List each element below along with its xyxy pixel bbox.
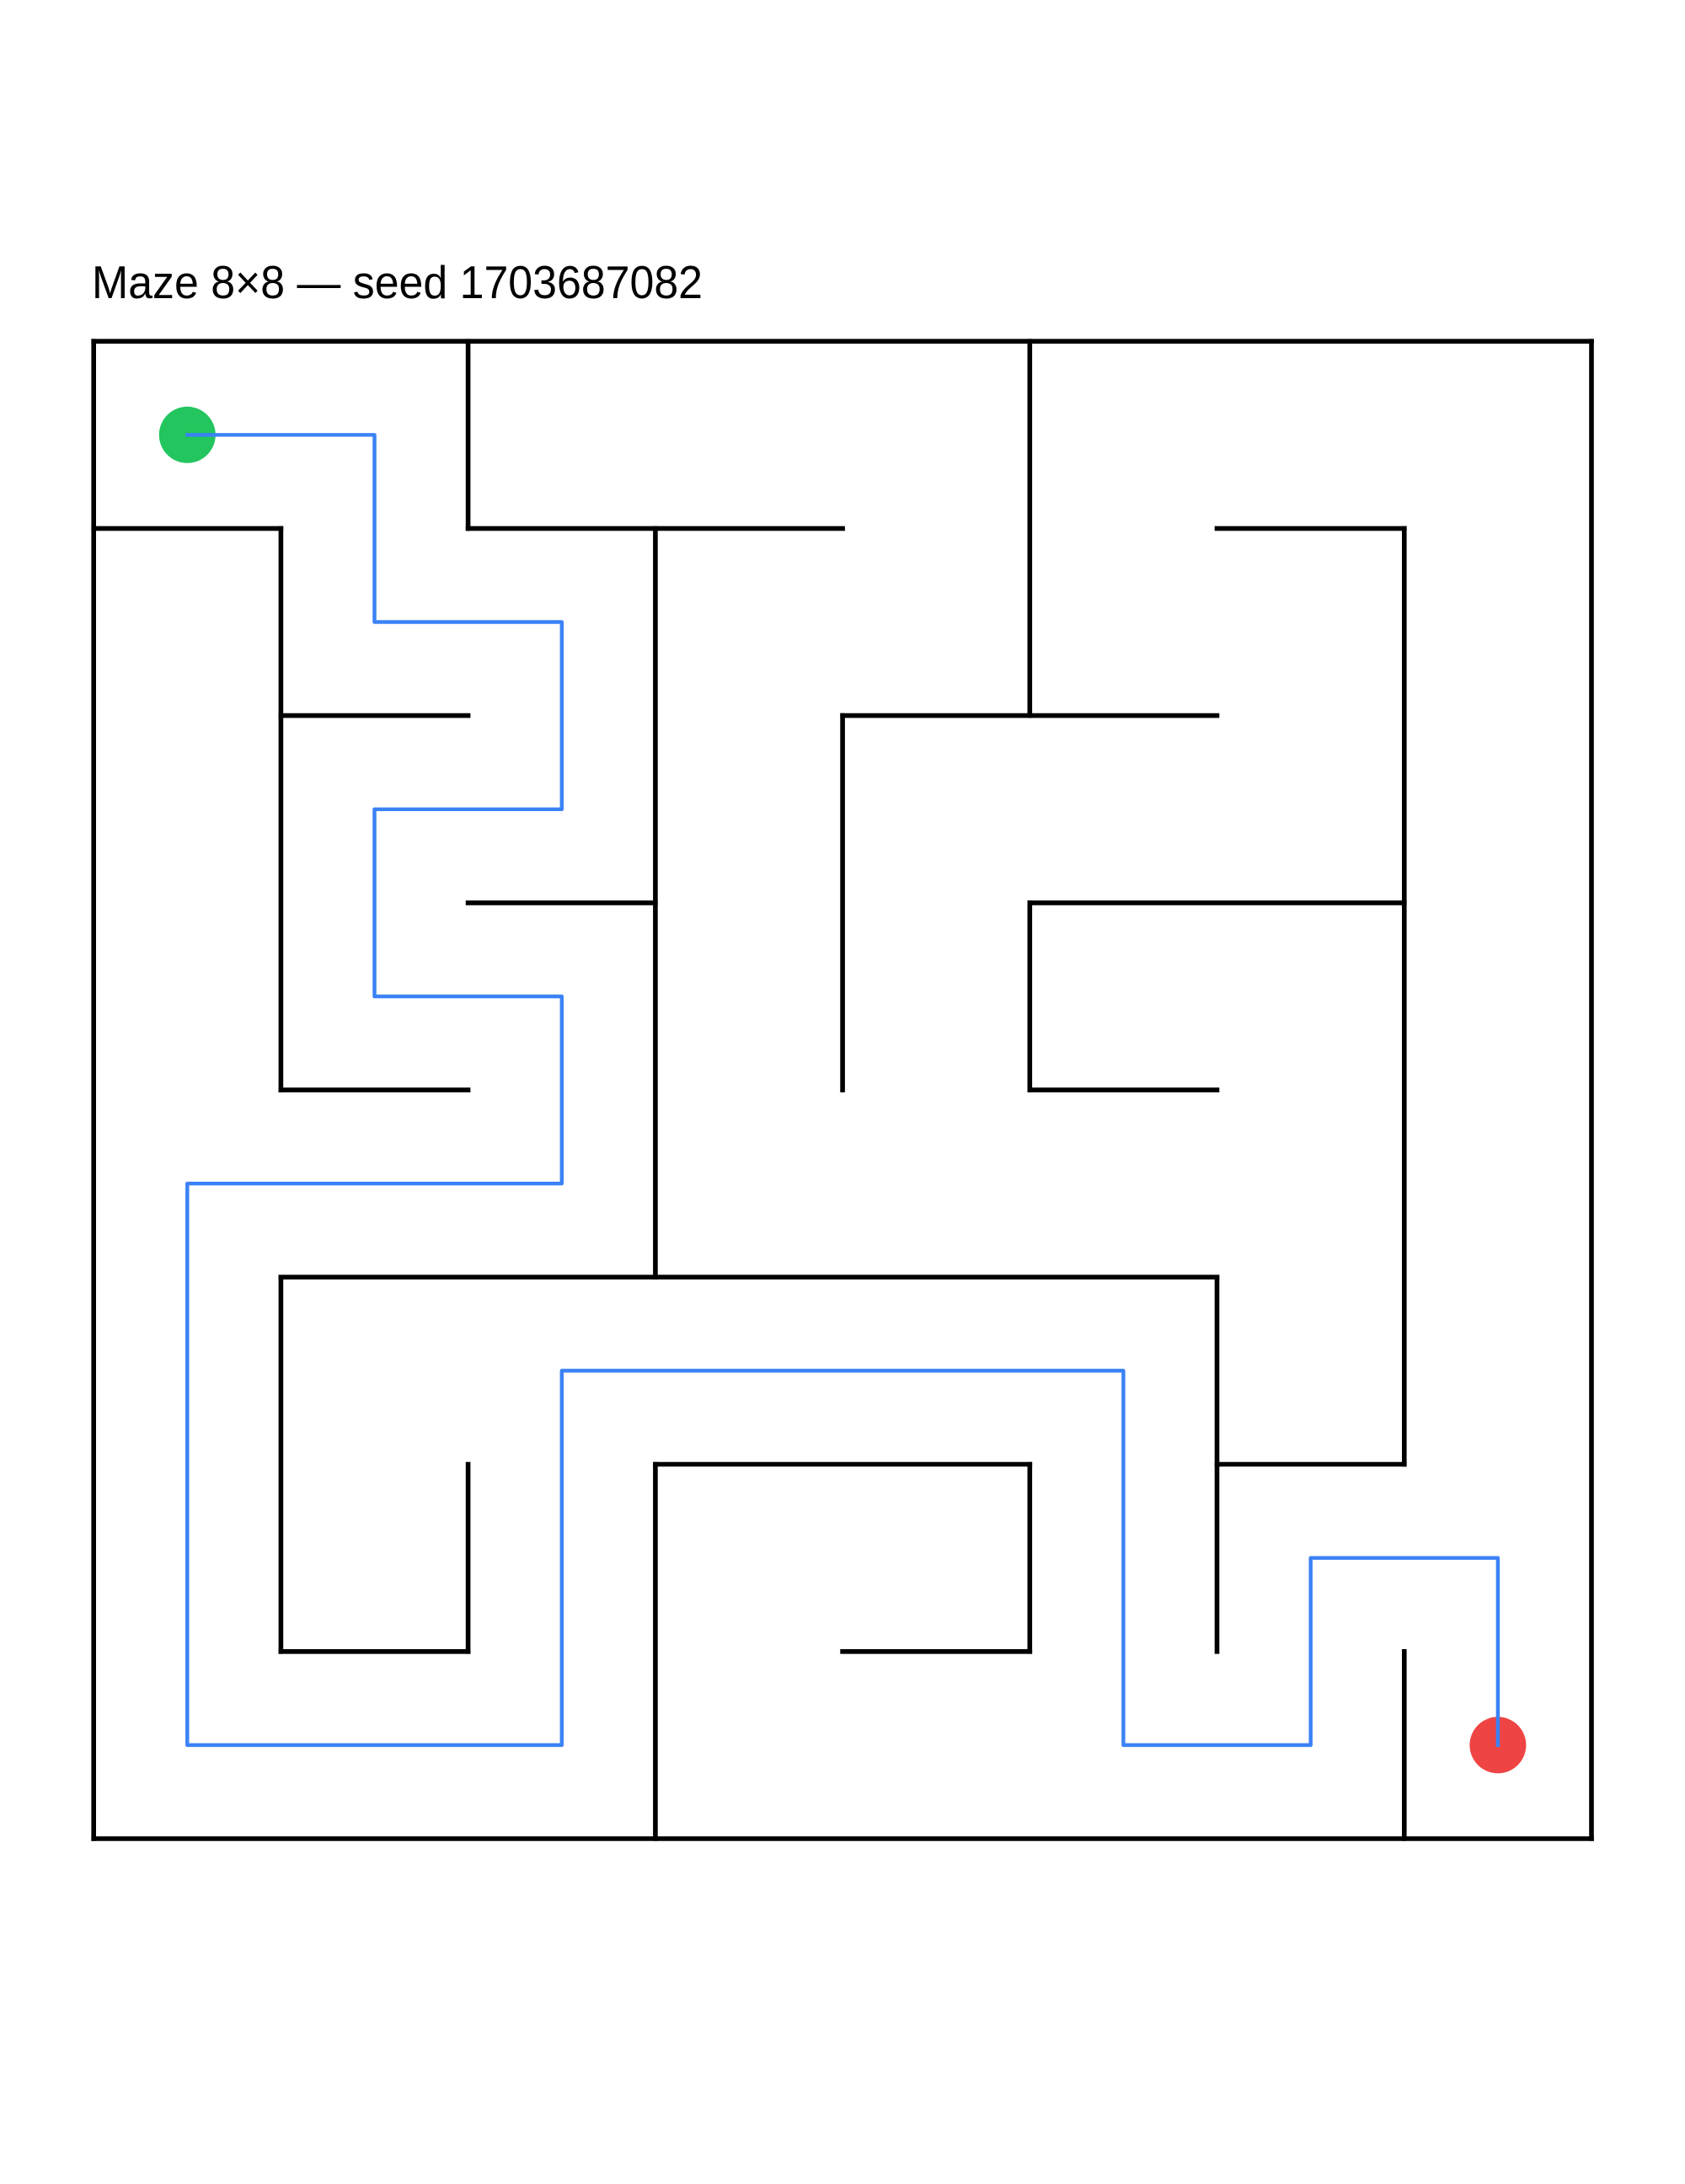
- svg-text:Maze 8×8 — seed 1703687082: Maze 8×8 — seed 1703687082: [92, 256, 703, 308]
